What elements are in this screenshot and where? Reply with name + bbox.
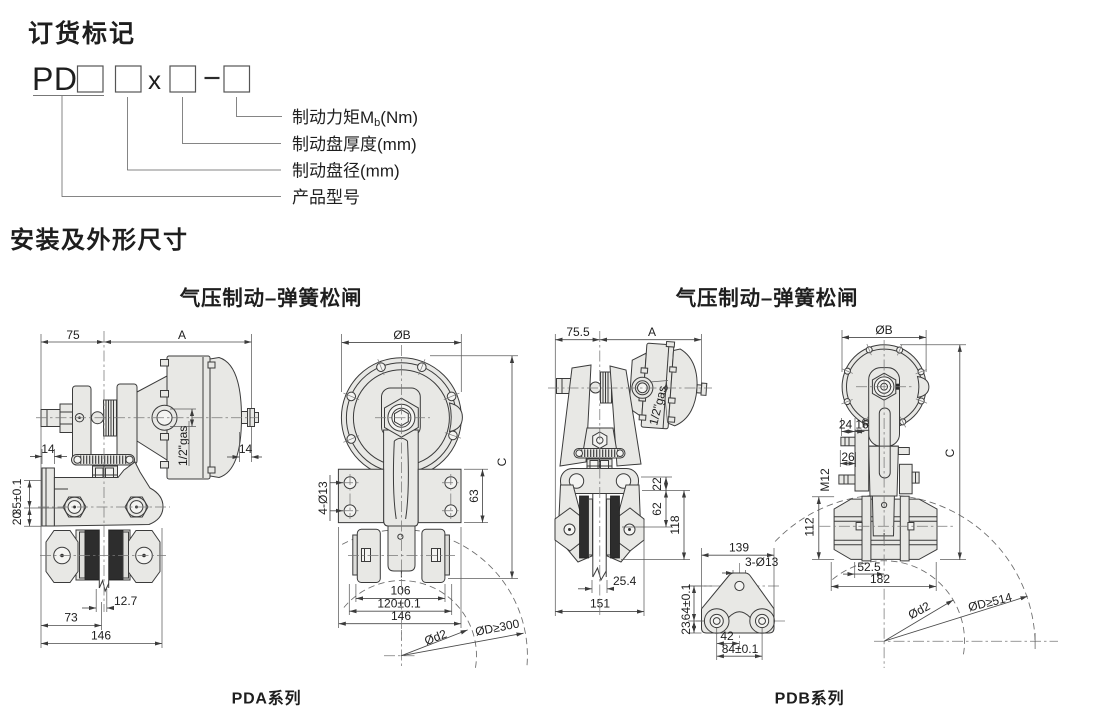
- svg-text:Ød2: Ød2: [906, 599, 933, 622]
- svg-text:ØB: ØB: [875, 323, 892, 337]
- svg-text:4-Ø13: 4-Ø13: [316, 481, 330, 515]
- svg-text:气压制动–弹簧松闸: 气压制动–弹簧松闸: [675, 286, 859, 310]
- svg-text:75.5: 75.5: [566, 325, 590, 339]
- svg-text:气压制动–弹簧松闸: 气压制动–弹簧松闸: [179, 286, 363, 310]
- svg-text:C: C: [943, 448, 957, 457]
- svg-text:M12: M12: [818, 468, 832, 492]
- svg-text:产品型号: 产品型号: [292, 188, 360, 207]
- svg-text:14: 14: [41, 442, 55, 456]
- svg-text:A: A: [648, 325, 656, 339]
- svg-text:23: 23: [679, 621, 693, 635]
- svg-text:ØD≥514: ØD≥514: [967, 590, 1014, 614]
- svg-text:PDB系列: PDB系列: [775, 689, 845, 708]
- svg-text:182: 182: [870, 572, 890, 586]
- svg-text:25.4: 25.4: [613, 574, 637, 588]
- svg-text:C: C: [495, 457, 509, 466]
- svg-text:73: 73: [64, 611, 78, 625]
- svg-text:118: 118: [668, 515, 682, 534]
- svg-text:35±0.1: 35±0.1: [10, 478, 24, 515]
- svg-text:16: 16: [855, 418, 869, 432]
- svg-text:14: 14: [239, 442, 253, 456]
- svg-text:64±0.1: 64±0.1: [679, 583, 693, 620]
- svg-text:22: 22: [650, 477, 664, 491]
- svg-text:20: 20: [10, 512, 24, 526]
- svg-text:146: 146: [91, 629, 111, 643]
- svg-text:26: 26: [841, 450, 855, 464]
- svg-text:x: x: [148, 65, 161, 95]
- svg-text:75: 75: [66, 328, 80, 342]
- svg-text:安装及外形尺寸: 安装及外形尺寸: [10, 226, 189, 254]
- svg-text:12.7: 12.7: [114, 594, 138, 608]
- svg-text:106: 106: [390, 584, 410, 598]
- svg-text:制动盘厚度(mm): 制动盘厚度(mm): [292, 135, 417, 154]
- svg-text:112: 112: [803, 517, 817, 536]
- svg-text:制动盘径(mm): 制动盘径(mm): [292, 162, 400, 181]
- svg-text:Ød2: Ød2: [422, 627, 448, 648]
- svg-text:订货标记: 订货标记: [28, 19, 136, 48]
- svg-text:84±0.1: 84±0.1: [722, 642, 759, 656]
- svg-text:63: 63: [467, 489, 481, 503]
- svg-text:24: 24: [839, 418, 853, 432]
- svg-text:PDA系列: PDA系列: [232, 689, 302, 708]
- svg-text:制动力矩Mb(Nm): 制动力矩Mb(Nm): [292, 108, 418, 129]
- svg-text:ØB: ØB: [393, 328, 410, 342]
- svg-text:1/2"gas: 1/2"gas: [176, 426, 190, 466]
- svg-text:62: 62: [650, 502, 664, 516]
- svg-text:139: 139: [729, 541, 749, 555]
- svg-text:3-Ø13: 3-Ø13: [745, 555, 779, 569]
- svg-text:PD: PD: [32, 61, 77, 97]
- svg-text:A: A: [178, 328, 186, 342]
